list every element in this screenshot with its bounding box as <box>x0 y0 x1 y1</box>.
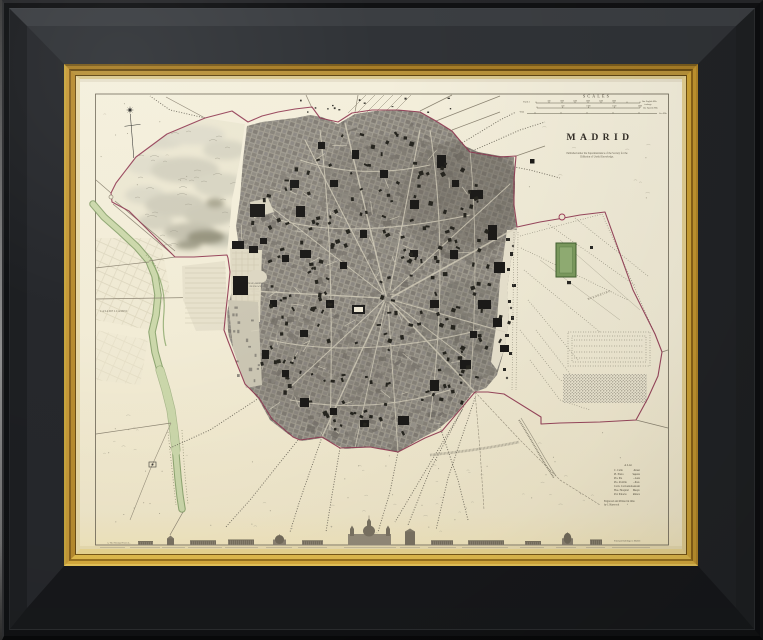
svg-text:Geo.Mile: Geo.Mile <box>659 113 667 115</box>
svg-text:Yards 1: Yards 1 <box>523 101 531 103</box>
svg-text:500: 500 <box>561 105 564 107</box>
svg-text:2500: 2500 <box>599 101 603 103</box>
svg-text:furlongs: furlongs <box>645 103 652 106</box>
svg-text:Post.: Post. <box>635 481 641 484</box>
svg-text:by J. Harwood: by J. Harwood <box>604 504 620 507</box>
svg-text:A. The Principal Front of...: A. The Principal Front of... <box>107 542 131 545</box>
svg-text:Hospl.: Hospl. <box>633 489 640 492</box>
svg-text:Principal Buildings in Madrid: Principal Buildings in Madrid <box>614 540 641 543</box>
svg-text:1500: 1500 <box>612 105 616 107</box>
svg-text:Convent: Convent <box>631 485 640 488</box>
svg-text:2000: 2000 <box>586 101 590 103</box>
svg-text:DE PALACIO: DE PALACIO <box>250 285 263 288</box>
svg-text:Square: Square <box>633 473 641 476</box>
svg-text:A List: A List <box>624 463 632 467</box>
svg-text:Hos. Hospital: Hos. Hospital <box>614 489 629 492</box>
svg-text:Pal. Palacio: Pal. Palacio <box>614 493 627 496</box>
svg-text:SCALES: SCALES <box>583 94 611 99</box>
svg-text:2000: 2000 <box>638 105 642 107</box>
svg-text:Pta. Pta: Pta. Pta <box>614 477 623 480</box>
svg-text:C A S A D E L C A M P O: C A S A D E L C A M P O <box>100 310 127 313</box>
svg-text:1500: 1500 <box>573 101 577 103</box>
svg-text:C. Calle: C. Calle <box>614 469 624 472</box>
svg-text:MADRID: MADRID <box>567 132 634 143</box>
svg-text:Street: Street <box>634 469 641 472</box>
svg-text:500: 500 <box>547 101 550 103</box>
svg-text:1000: 1000 <box>560 101 564 103</box>
svg-text:Conv. Convento: Conv. Convento <box>614 485 632 488</box>
svg-text:One Spanish Mile: One Spanish Mile <box>643 108 658 110</box>
svg-text:Pto. Portillo: Pto. Portillo <box>614 481 628 484</box>
svg-text:Palace: Palace <box>633 493 641 496</box>
svg-text:Gate: Gate <box>635 477 641 480</box>
svg-text:PLAZA ORIENTE: PLAZA ORIENTE <box>248 282 265 285</box>
svg-text:1000: 1000 <box>586 105 590 107</box>
svg-text:Pl. Plaza: Pl. Plaza <box>614 473 624 476</box>
svg-text:One English Mile: One English Mile <box>642 100 657 103</box>
svg-text:Diffusion of Useful Knowledge.: Diffusion of Useful Knowledge. <box>580 156 614 159</box>
svg-text:3000: 3000 <box>612 101 616 103</box>
